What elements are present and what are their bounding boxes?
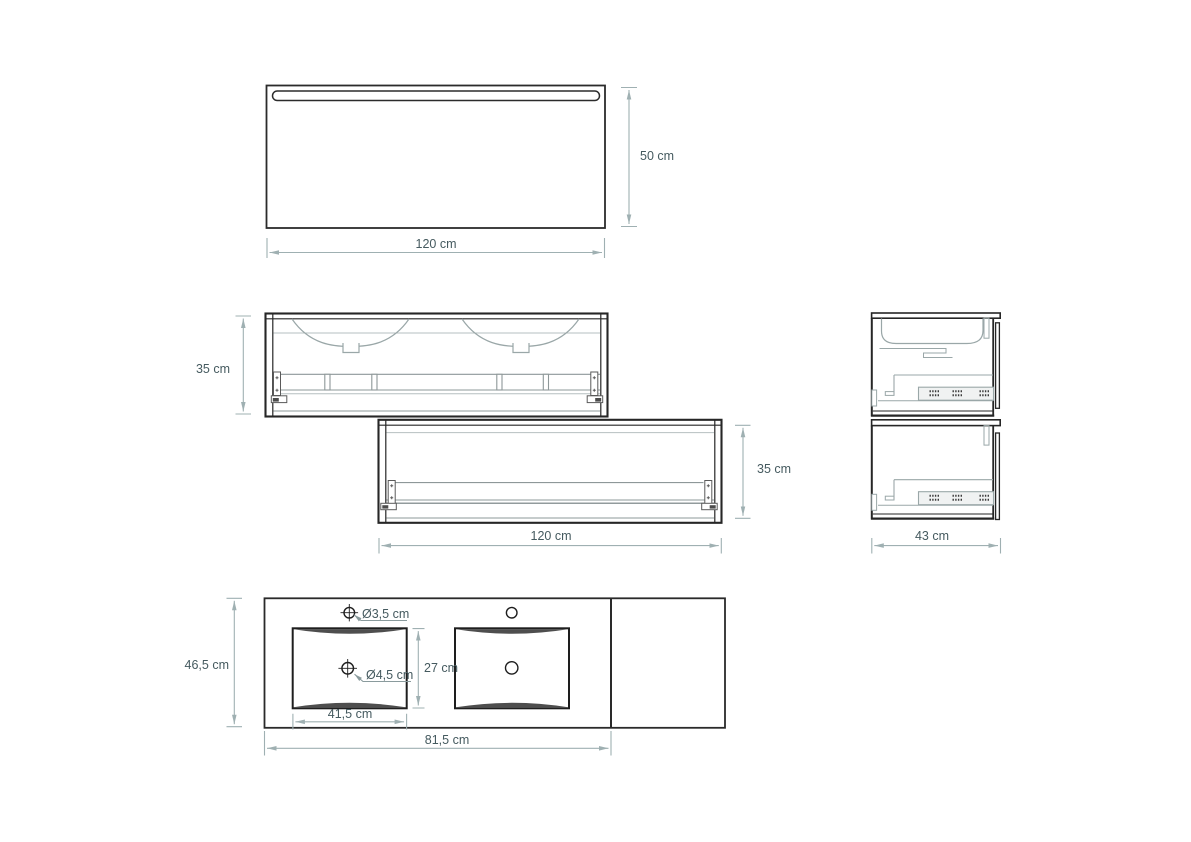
tap-hole-right	[506, 607, 517, 618]
dim-label-mirror-height: 50 cm	[640, 149, 674, 163]
upper-cabinet-front-view	[266, 314, 608, 417]
cabinet-carcass	[379, 420, 722, 523]
side-view-upper-drawer	[871, 313, 1000, 417]
mirror-led-strip	[273, 91, 600, 101]
front-fixing-bracket	[984, 426, 989, 446]
mirror-height-dimension	[621, 88, 637, 227]
dim-label-basin-width: 41,5 cm	[328, 707, 372, 721]
drawer-front-panel	[996, 323, 1000, 409]
rail-clip	[885, 496, 894, 500]
top-band	[872, 420, 1001, 426]
lower-cabinet-height-dimension	[735, 425, 751, 518]
dim-label-side-depth: 43 cm	[915, 529, 949, 543]
basin-inner-depth-dimension	[413, 629, 425, 708]
drawer-rail	[274, 374, 601, 390]
rail-bracket-left	[271, 372, 287, 403]
basin-right-top-curve	[456, 629, 568, 634]
technical-drawing-canvas: 50 cm 120 cm 35 cm 35 cm 120 cm 43 cm 46…	[0, 0, 1191, 842]
drawer-rail	[387, 483, 715, 504]
slide-rail	[919, 492, 994, 505]
dim-label-upper-cabinet-height: 35 cm	[196, 362, 230, 376]
upper-cabinet-height-dimension	[236, 316, 252, 414]
dim-label-mirror-width: 120 cm	[416, 237, 457, 251]
drain-hole-right	[506, 662, 518, 674]
tap-hole-left	[341, 604, 359, 621]
side-view-lower-drawer	[871, 420, 1000, 520]
mirror-front-view	[267, 86, 606, 229]
drain-hole-left	[338, 659, 357, 678]
drawer-front-panel	[996, 433, 1000, 520]
cabinet-carcass	[266, 314, 608, 417]
dim-label-tap-hole-diameter: Ø3,5 cm	[362, 607, 409, 621]
drain-pipe-profile	[880, 349, 953, 358]
mirror-frame	[267, 86, 606, 229]
drawing-linework	[0, 0, 1191, 842]
lower-cabinet-front-view	[379, 420, 722, 523]
side-panel-lines	[386, 421, 715, 523]
dim-label-washbasin-width: 81,5 cm	[425, 733, 469, 747]
basin-right-outline	[455, 628, 569, 708]
countertop-band	[872, 313, 1001, 318]
front-fixing-bracket	[984, 318, 989, 338]
slide-rail	[919, 387, 994, 400]
dim-label-basin-inner-depth: 27 cm	[424, 661, 458, 675]
rail-bracket-left	[381, 481, 397, 510]
wall-bracket-notch	[872, 494, 877, 510]
dim-label-drain-hole-diameter: Ø4,5 cm	[366, 668, 413, 682]
basin-right-bottom-curve	[456, 703, 568, 708]
dim-label-washbasin-depth: 46,5 cm	[185, 658, 229, 672]
basin-profile	[882, 319, 984, 344]
wall-bracket-notch	[872, 390, 877, 406]
rail-clip	[885, 392, 894, 396]
basin-left-top-curve	[294, 629, 406, 634]
dim-label-lower-cabinet-height: 35 cm	[757, 462, 791, 476]
dim-label-lower-cabinet-width: 120 cm	[531, 529, 572, 543]
side-panel-lines	[273, 314, 601, 416]
